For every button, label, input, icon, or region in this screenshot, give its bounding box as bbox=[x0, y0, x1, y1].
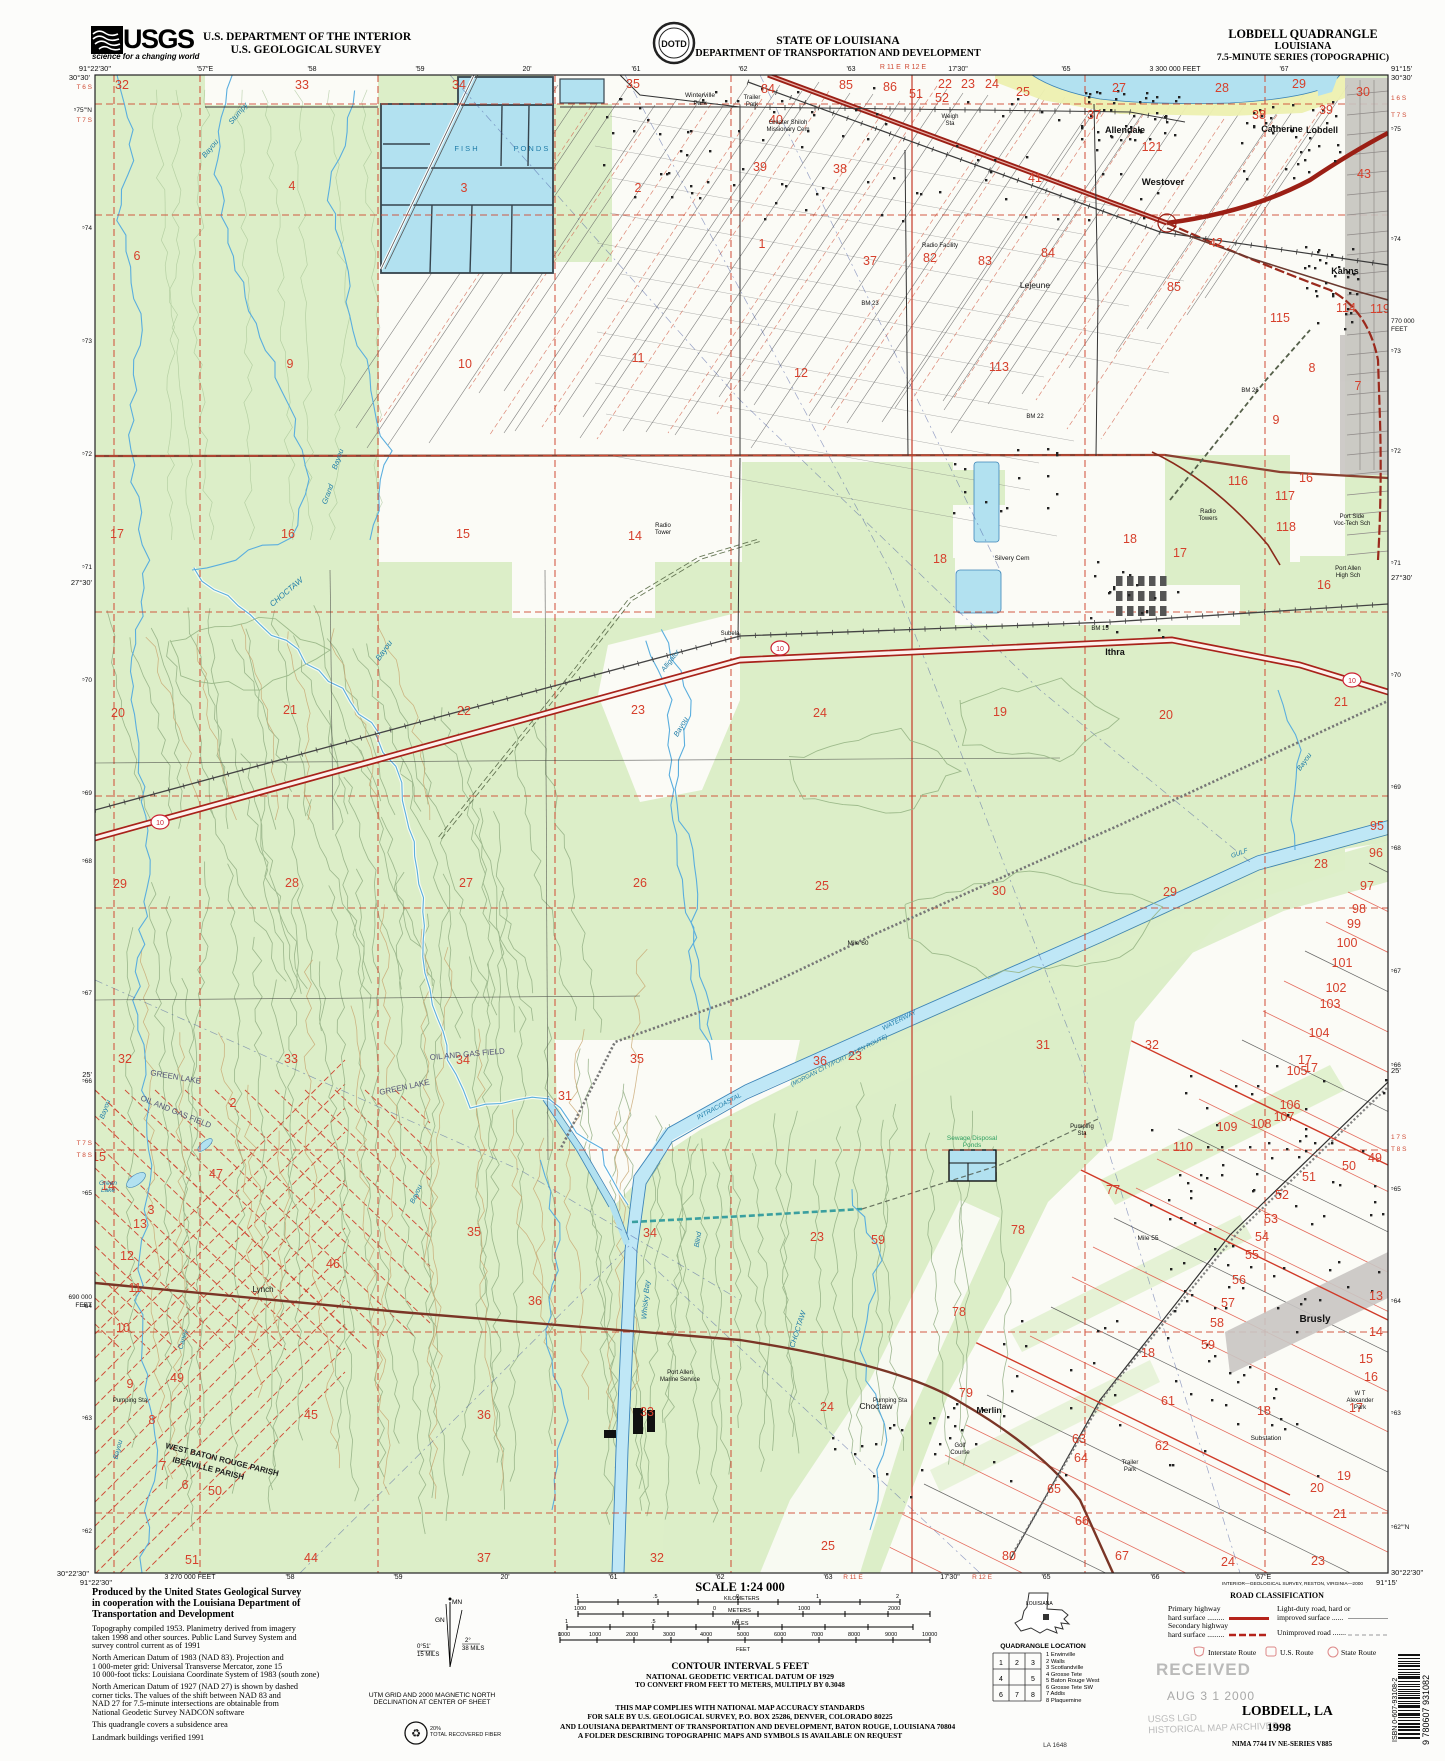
svg-text:10: 10 bbox=[458, 357, 472, 371]
svg-text:23: 23 bbox=[1311, 1554, 1325, 1568]
svg-text:98: 98 bbox=[1352, 902, 1366, 916]
svg-text:118: 118 bbox=[1276, 520, 1296, 534]
svg-text:9: 9 bbox=[127, 1377, 134, 1391]
svg-text:26: 26 bbox=[633, 876, 647, 890]
svg-text:12: 12 bbox=[120, 1249, 134, 1263]
svg-text:59: 59 bbox=[1201, 1338, 1215, 1352]
svg-text:59: 59 bbox=[871, 1233, 885, 1247]
svg-text:17: 17 bbox=[1173, 546, 1187, 560]
svg-text:28: 28 bbox=[1314, 857, 1328, 871]
svg-text:117: 117 bbox=[1275, 489, 1295, 503]
svg-text:6: 6 bbox=[134, 249, 141, 263]
svg-text:27: 27 bbox=[1112, 81, 1126, 95]
svg-text:21: 21 bbox=[283, 703, 297, 717]
svg-text:99: 99 bbox=[1347, 917, 1361, 931]
svg-text:47: 47 bbox=[209, 1167, 223, 1181]
svg-text:35: 35 bbox=[467, 1225, 481, 1239]
svg-text:116: 116 bbox=[1228, 474, 1248, 488]
svg-text:W T: W T bbox=[1355, 1391, 1366, 1397]
svg-text:18: 18 bbox=[1141, 1346, 1155, 1360]
svg-text:36: 36 bbox=[477, 1408, 491, 1422]
svg-text:Greater Shiloh: Greater Shiloh bbox=[769, 120, 808, 126]
svg-text:25: 25 bbox=[821, 1539, 835, 1553]
svg-text:Sta: Sta bbox=[945, 121, 955, 127]
svg-text:37: 37 bbox=[1087, 108, 1101, 122]
svg-text:Substation: Substation bbox=[1251, 1435, 1282, 1442]
svg-text:34: 34 bbox=[452, 78, 466, 92]
svg-text:Weigh: Weigh bbox=[942, 114, 959, 120]
svg-text:Radio Facility: Radio Facility bbox=[922, 243, 958, 249]
svg-text:64: 64 bbox=[1074, 1451, 1088, 1465]
svg-text:17: 17 bbox=[110, 527, 124, 541]
svg-text:18: 18 bbox=[1257, 1404, 1271, 1418]
svg-text:8: 8 bbox=[1309, 361, 1316, 375]
svg-text:52: 52 bbox=[1275, 1188, 1289, 1202]
svg-text:9: 9 bbox=[287, 357, 294, 371]
svg-text:49: 49 bbox=[1368, 1151, 1382, 1165]
svg-text:39: 39 bbox=[1319, 103, 1333, 117]
svg-text:28: 28 bbox=[1215, 81, 1229, 95]
svg-text:3: 3 bbox=[148, 1203, 155, 1217]
svg-text:12: 12 bbox=[794, 366, 808, 380]
svg-text:32: 32 bbox=[650, 1551, 664, 1565]
svg-text:22: 22 bbox=[457, 704, 471, 718]
svg-text:Lejeune: Lejeune bbox=[1020, 280, 1051, 290]
svg-text:35: 35 bbox=[626, 77, 640, 91]
svg-text:32: 32 bbox=[115, 78, 129, 92]
svg-text:Winterville: Winterville bbox=[685, 92, 715, 99]
svg-text:58: 58 bbox=[1210, 1316, 1224, 1330]
svg-text:67: 67 bbox=[1115, 1549, 1129, 1563]
svg-text:43: 43 bbox=[1357, 167, 1371, 181]
svg-text:11: 11 bbox=[129, 1281, 142, 1295]
svg-text:11: 11 bbox=[632, 351, 645, 365]
svg-text:Marine Service: Marine Service bbox=[660, 1377, 701, 1383]
svg-text:F I S H: F I S H bbox=[454, 144, 477, 153]
svg-text:Port Allen: Port Allen bbox=[1335, 566, 1361, 572]
svg-text:15: 15 bbox=[92, 1150, 106, 1164]
svg-text:19: 19 bbox=[1337, 1469, 1351, 1483]
svg-text:24: 24 bbox=[985, 77, 999, 91]
svg-text:Missionary Cem: Missionary Cem bbox=[766, 127, 809, 133]
svg-text:Green: Green bbox=[99, 1180, 117, 1187]
svg-text:13: 13 bbox=[133, 1217, 147, 1231]
svg-text:Tower: Tower bbox=[655, 530, 671, 536]
svg-text:23: 23 bbox=[961, 77, 975, 91]
svg-text:33: 33 bbox=[640, 1405, 654, 1419]
svg-text:23: 23 bbox=[631, 703, 645, 717]
svg-text:Lake: Lake bbox=[101, 1187, 115, 1194]
svg-text:Trailer: Trailer bbox=[1122, 1460, 1139, 1466]
svg-text:56: 56 bbox=[1232, 1273, 1246, 1287]
svg-text:86: 86 bbox=[883, 80, 897, 94]
svg-text:Park: Park bbox=[1354, 1405, 1367, 1411]
svg-text:85: 85 bbox=[1167, 280, 1181, 294]
svg-text:42: 42 bbox=[1209, 236, 1223, 250]
svg-text:Course: Course bbox=[950, 1450, 970, 1456]
svg-text:79: 79 bbox=[959, 1386, 973, 1400]
svg-text:25: 25 bbox=[815, 879, 829, 893]
svg-text:62: 62 bbox=[1155, 1439, 1169, 1453]
svg-text:Kahns: Kahns bbox=[1331, 266, 1359, 276]
svg-text:51: 51 bbox=[909, 87, 923, 101]
svg-text:2: 2 bbox=[635, 181, 642, 195]
svg-text:103: 103 bbox=[1320, 997, 1341, 1011]
svg-text:63: 63 bbox=[1072, 1432, 1086, 1446]
svg-text:31: 31 bbox=[558, 1089, 572, 1103]
svg-text:Lobdell: Lobdell bbox=[1306, 125, 1338, 135]
svg-text:37: 37 bbox=[477, 1551, 491, 1565]
svg-text:Port Side: Port Side bbox=[1340, 514, 1365, 520]
svg-text:Voc-Tech Sch: Voc-Tech Sch bbox=[1334, 521, 1371, 527]
svg-text:18: 18 bbox=[933, 552, 947, 566]
svg-text:84: 84 bbox=[761, 82, 775, 96]
svg-text:102: 102 bbox=[1326, 981, 1347, 995]
svg-text:28: 28 bbox=[285, 876, 299, 890]
svg-text:30: 30 bbox=[1356, 85, 1370, 99]
svg-text:37: 37 bbox=[863, 254, 877, 268]
svg-text:27: 27 bbox=[459, 876, 473, 890]
svg-text:Mile 60: Mile 60 bbox=[848, 940, 869, 947]
svg-text:119: 119 bbox=[1370, 302, 1390, 316]
svg-text:10: 10 bbox=[776, 646, 784, 653]
svg-text:109: 109 bbox=[1217, 1120, 1238, 1134]
svg-text:BM 15: BM 15 bbox=[1091, 626, 1109, 632]
svg-text:35: 35 bbox=[630, 1052, 644, 1066]
svg-text:30: 30 bbox=[992, 884, 1006, 898]
svg-text:Radio: Radio bbox=[655, 523, 671, 529]
svg-text:Westover: Westover bbox=[1142, 177, 1185, 188]
svg-text:Mile 55: Mile 55 bbox=[1138, 1235, 1159, 1242]
svg-text:Subela: Subela bbox=[721, 631, 740, 637]
svg-text:61: 61 bbox=[1161, 1394, 1175, 1408]
svg-text:20: 20 bbox=[111, 706, 125, 720]
svg-text:51: 51 bbox=[1302, 1170, 1316, 1184]
svg-text:55: 55 bbox=[1245, 1248, 1259, 1262]
svg-text:85: 85 bbox=[839, 78, 853, 92]
svg-text:38: 38 bbox=[1252, 108, 1266, 122]
svg-text:29: 29 bbox=[1292, 77, 1306, 91]
svg-text:16: 16 bbox=[281, 527, 295, 541]
svg-text:9: 9 bbox=[1273, 413, 1280, 427]
svg-text:Sta: Sta bbox=[1077, 1131, 1087, 1137]
svg-text:49: 49 bbox=[170, 1371, 184, 1385]
svg-text:Radio: Radio bbox=[1200, 509, 1216, 515]
svg-text:36: 36 bbox=[528, 1294, 542, 1308]
svg-text:108: 108 bbox=[1251, 1117, 1272, 1131]
svg-text:20: 20 bbox=[1159, 708, 1173, 722]
svg-text:Pumping Sta: Pumping Sta bbox=[873, 1398, 908, 1404]
svg-text:66: 66 bbox=[1075, 1514, 1089, 1528]
svg-text:25: 25 bbox=[1016, 85, 1030, 99]
svg-text:Pumping: Pumping bbox=[1070, 1124, 1094, 1130]
svg-text:21: 21 bbox=[1334, 695, 1348, 709]
svg-text:53: 53 bbox=[1264, 1212, 1278, 1226]
svg-text:Park: Park bbox=[1124, 1467, 1137, 1473]
svg-text:50: 50 bbox=[208, 1484, 222, 1498]
svg-text:4: 4 bbox=[289, 179, 296, 193]
svg-text:121: 121 bbox=[1142, 140, 1163, 154]
svg-text:Allendale: Allendale bbox=[1105, 125, 1145, 135]
svg-text:32: 32 bbox=[118, 1052, 132, 1066]
svg-text:65: 65 bbox=[1047, 1482, 1061, 1496]
svg-text:7: 7 bbox=[160, 1459, 167, 1473]
svg-text:14: 14 bbox=[628, 529, 642, 543]
svg-text:57: 57 bbox=[1221, 1296, 1235, 1310]
svg-text:23: 23 bbox=[810, 1230, 824, 1244]
svg-text:34: 34 bbox=[643, 1226, 657, 1240]
svg-text:24: 24 bbox=[813, 706, 827, 720]
svg-text:Brusly: Brusly bbox=[1299, 1314, 1331, 1325]
svg-text:15: 15 bbox=[456, 527, 470, 541]
svg-text:6: 6 bbox=[182, 1478, 189, 1492]
svg-text:15: 15 bbox=[1359, 1352, 1373, 1366]
svg-text:Park: Park bbox=[746, 102, 759, 108]
svg-text:Trailer: Trailer bbox=[744, 95, 761, 101]
svg-text:77: 77 bbox=[1106, 1183, 1120, 1197]
svg-text:51: 51 bbox=[185, 1553, 199, 1567]
svg-text:Pumping Sta: Pumping Sta bbox=[113, 1398, 148, 1404]
svg-text:32: 32 bbox=[1145, 1038, 1159, 1052]
svg-text:BM 22: BM 22 bbox=[1026, 414, 1044, 420]
svg-text:Catherine: Catherine bbox=[1261, 124, 1303, 134]
svg-text:3: 3 bbox=[461, 181, 468, 195]
svg-text:10: 10 bbox=[156, 820, 164, 827]
svg-text:33: 33 bbox=[295, 78, 309, 92]
svg-text:10: 10 bbox=[116, 1321, 130, 1335]
svg-text:BM 23: BM 23 bbox=[861, 301, 879, 307]
svg-text:BM 26: BM 26 bbox=[1241, 388, 1259, 394]
svg-text:24: 24 bbox=[820, 1400, 834, 1414]
svg-text:13: 13 bbox=[1369, 1289, 1383, 1303]
svg-text:10: 10 bbox=[1348, 678, 1356, 685]
svg-text:113: 113 bbox=[989, 360, 1009, 374]
svg-text:Sewage Disposal: Sewage Disposal bbox=[947, 1135, 998, 1142]
svg-text:22: 22 bbox=[938, 77, 952, 91]
svg-text:8: 8 bbox=[149, 1413, 156, 1427]
svg-text:44: 44 bbox=[304, 1551, 318, 1565]
svg-text:21: 21 bbox=[1333, 1507, 1347, 1521]
svg-text:96: 96 bbox=[1369, 846, 1383, 860]
svg-text:Ponds: Ponds bbox=[963, 1142, 982, 1149]
svg-text:41: 41 bbox=[1028, 171, 1042, 185]
svg-text:16: 16 bbox=[1364, 1370, 1378, 1384]
svg-text:P O N D S: P O N D S bbox=[514, 144, 549, 153]
svg-text:107: 107 bbox=[1274, 1110, 1295, 1124]
svg-text:1: 1 bbox=[759, 237, 766, 251]
svg-text:31: 31 bbox=[1036, 1038, 1050, 1052]
svg-text:84: 84 bbox=[1041, 246, 1055, 260]
svg-text:Alexander: Alexander bbox=[1346, 1398, 1373, 1404]
svg-text:Silvery Cem: Silvery Cem bbox=[994, 555, 1029, 562]
svg-text:20: 20 bbox=[1310, 1481, 1324, 1495]
svg-text:29: 29 bbox=[113, 877, 127, 891]
svg-text:78: 78 bbox=[952, 1305, 966, 1319]
svg-text:80: 80 bbox=[1002, 1549, 1016, 1563]
svg-text:Ithra: Ithra bbox=[1105, 647, 1125, 657]
svg-text:Golf: Golf bbox=[954, 1443, 965, 1449]
svg-text:High Sch: High Sch bbox=[1336, 573, 1360, 579]
svg-text:52: 52 bbox=[935, 91, 949, 105]
svg-text:16: 16 bbox=[1317, 578, 1331, 592]
svg-text:2: 2 bbox=[230, 1096, 237, 1110]
svg-text:39: 39 bbox=[753, 160, 767, 174]
svg-text:Lynch: Lynch bbox=[252, 1285, 273, 1294]
svg-text:115: 115 bbox=[1270, 311, 1290, 325]
svg-text:45: 45 bbox=[304, 1408, 318, 1422]
svg-text:24: 24 bbox=[1221, 1555, 1235, 1569]
svg-text:38: 38 bbox=[833, 162, 847, 176]
svg-text:104: 104 bbox=[1309, 1026, 1330, 1040]
svg-text:54: 54 bbox=[1255, 1230, 1269, 1244]
svg-text:95: 95 bbox=[1370, 819, 1384, 833]
svg-text:100: 100 bbox=[1337, 936, 1358, 950]
svg-text:46: 46 bbox=[326, 1257, 340, 1271]
svg-text:33: 33 bbox=[284, 1052, 298, 1066]
svg-text:Towers: Towers bbox=[1198, 516, 1217, 522]
svg-text:16: 16 bbox=[1299, 471, 1313, 485]
svg-text:17: 17 bbox=[1304, 1061, 1318, 1075]
svg-text:101: 101 bbox=[1332, 956, 1353, 970]
svg-text:14: 14 bbox=[1369, 1325, 1383, 1339]
svg-text:Merlin: Merlin bbox=[976, 1405, 1001, 1415]
svg-text:97: 97 bbox=[1360, 879, 1374, 893]
svg-text:50: 50 bbox=[1342, 1159, 1356, 1173]
svg-text:82: 82 bbox=[923, 251, 937, 265]
svg-text:114: 114 bbox=[1336, 301, 1356, 315]
svg-text:83: 83 bbox=[978, 254, 992, 268]
svg-text:18: 18 bbox=[1123, 532, 1137, 546]
svg-text:78: 78 bbox=[1011, 1223, 1025, 1237]
svg-text:7: 7 bbox=[1355, 379, 1362, 393]
svg-text:Port Allen: Port Allen bbox=[667, 1370, 693, 1376]
svg-text:29: 29 bbox=[1163, 885, 1177, 899]
svg-text:19: 19 bbox=[993, 705, 1007, 719]
svg-text:110: 110 bbox=[1173, 1140, 1193, 1154]
svg-text:Park: Park bbox=[693, 100, 707, 107]
